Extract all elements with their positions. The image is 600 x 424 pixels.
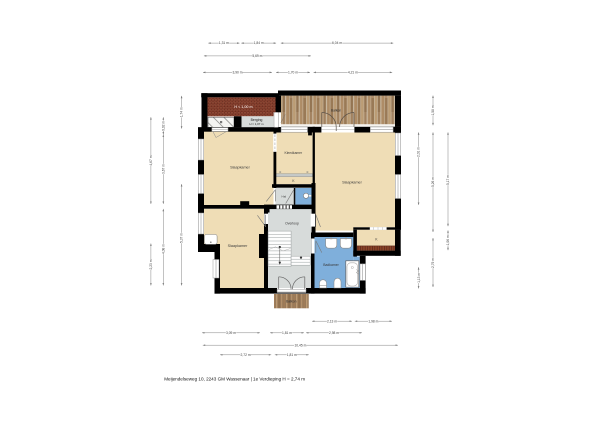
svg-text:H = 1,07 m: H = 1,07 m [249, 122, 264, 126]
svg-text:Overloop: Overloop [285, 221, 299, 225]
svg-text:2,01 m: 2,01 m [417, 147, 421, 157]
svg-text:1,81 m: 1,81 m [287, 353, 297, 357]
svg-text:Meijendelseweg 10, 2243 GM Was: Meijendelseweg 10, 2243 GM Wassenaar | 1… [164, 377, 305, 382]
svg-text:5,37 m: 5,37 m [180, 233, 184, 243]
svg-text:1,58 m: 1,58 m [431, 105, 435, 115]
svg-text:1,06 m: 1,06 m [446, 235, 450, 245]
svg-text:1,13 m: 1,13 m [417, 273, 421, 283]
svg-text:1,31 m: 1,31 m [219, 41, 229, 45]
svg-text:1,70 m: 1,70 m [288, 71, 298, 75]
svg-text:Kleedkamer: Kleedkamer [285, 151, 303, 155]
svg-text:1,84 m: 1,84 m [254, 41, 264, 45]
svg-text:10,45 m: 10,45 m [294, 343, 306, 347]
svg-text:5,69 m: 5,69 m [252, 54, 262, 58]
svg-text:1,98 m: 1,98 m [368, 319, 378, 323]
svg-text:H < 1,00 m: H < 1,00 m [234, 105, 252, 109]
svg-text:Badkamer: Badkamer [323, 263, 339, 267]
svg-text:4,08 m: 4,08 m [161, 244, 165, 254]
svg-text:Balkon: Balkon [286, 300, 296, 304]
svg-text:1,74 m: 1,74 m [180, 107, 184, 117]
svg-text:2,13 m: 2,13 m [327, 319, 337, 323]
svg-text:2,79 m: 2,79 m [431, 258, 435, 268]
svg-text:2,72 m: 2,72 m [241, 353, 251, 357]
svg-text:5,26 m: 5,26 m [431, 177, 435, 187]
svg-text:Slaapkamer: Slaapkamer [342, 180, 362, 184]
svg-text:Slaapkamer: Slaapkamer [230, 166, 250, 170]
svg-text:2,98 m: 2,98 m [329, 331, 339, 335]
svg-text:1,81 m: 1,81 m [282, 331, 292, 335]
svg-text:6,04 m: 6,04 m [332, 41, 342, 45]
svg-text:4,67 m: 4,67 m [149, 155, 153, 165]
svg-text:5,17 m: 5,17 m [446, 175, 450, 185]
svg-text:0,92 m: 0,92 m [161, 121, 165, 131]
svg-text:Balkon: Balkon [331, 109, 341, 113]
svg-text:3,09 m: 3,09 m [226, 331, 236, 335]
svg-text:Slaapkamer: Slaapkamer [228, 244, 248, 248]
svg-text:4,21 m: 4,21 m [348, 71, 358, 75]
svg-text:3,67 m: 3,67 m [161, 164, 165, 174]
svg-text:Hal: Hal [282, 195, 287, 199]
svg-text:3,90 m: 3,90 m [232, 71, 242, 75]
svg-text:2,23 m: 2,23 m [149, 259, 153, 269]
